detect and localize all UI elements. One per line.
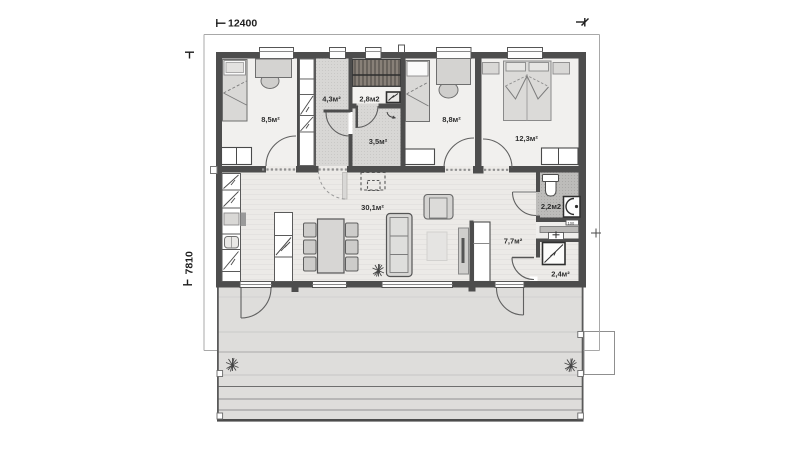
svg-text:8,5м²: 8,5м² [261, 115, 280, 124]
svg-text:12,3м²: 12,3м² [515, 134, 538, 143]
svg-text:30,1м²: 30,1м² [361, 203, 384, 212]
svg-text:3,5м²: 3,5м² [369, 137, 388, 146]
svg-text:100: 100 [568, 220, 575, 225]
svg-text:7,7м²: 7,7м² [504, 237, 523, 246]
svg-text:2,2м2: 2,2м2 [541, 202, 561, 211]
svg-text:4,3м²: 4,3м² [322, 95, 341, 104]
svg-text:12400: 12400 [228, 18, 257, 30]
svg-text:7810: 7810 [184, 251, 196, 275]
svg-text:8,8м²: 8,8м² [442, 115, 461, 124]
svg-text:2,8м2: 2,8м2 [359, 95, 379, 104]
svg-text:2,4м²: 2,4м² [551, 270, 570, 279]
